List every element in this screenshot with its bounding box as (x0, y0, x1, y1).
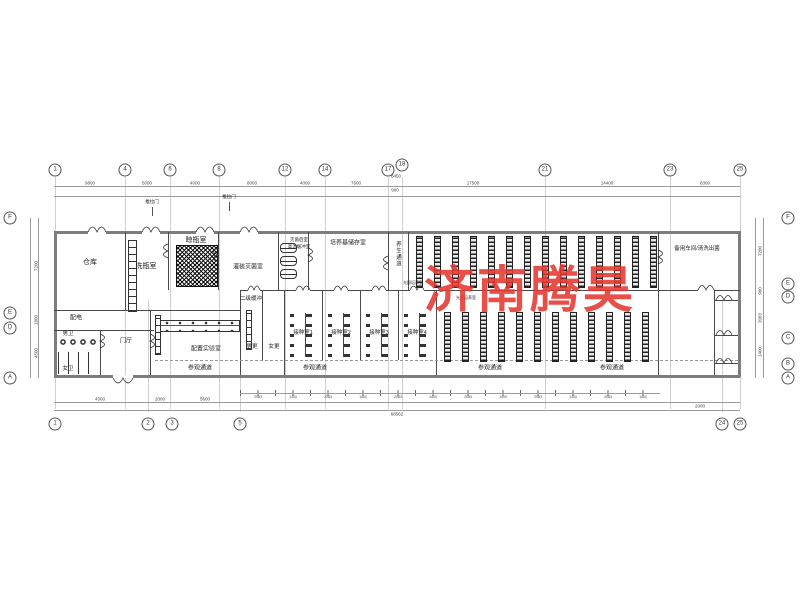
door-symbols (0, 0, 800, 600)
watermark-text: 济南腾昊 (424, 250, 636, 322)
floorplan-canvas: 1 4 6 8 12 14 17 18 21 23 25 1 2 3 5 24 … (0, 0, 800, 600)
